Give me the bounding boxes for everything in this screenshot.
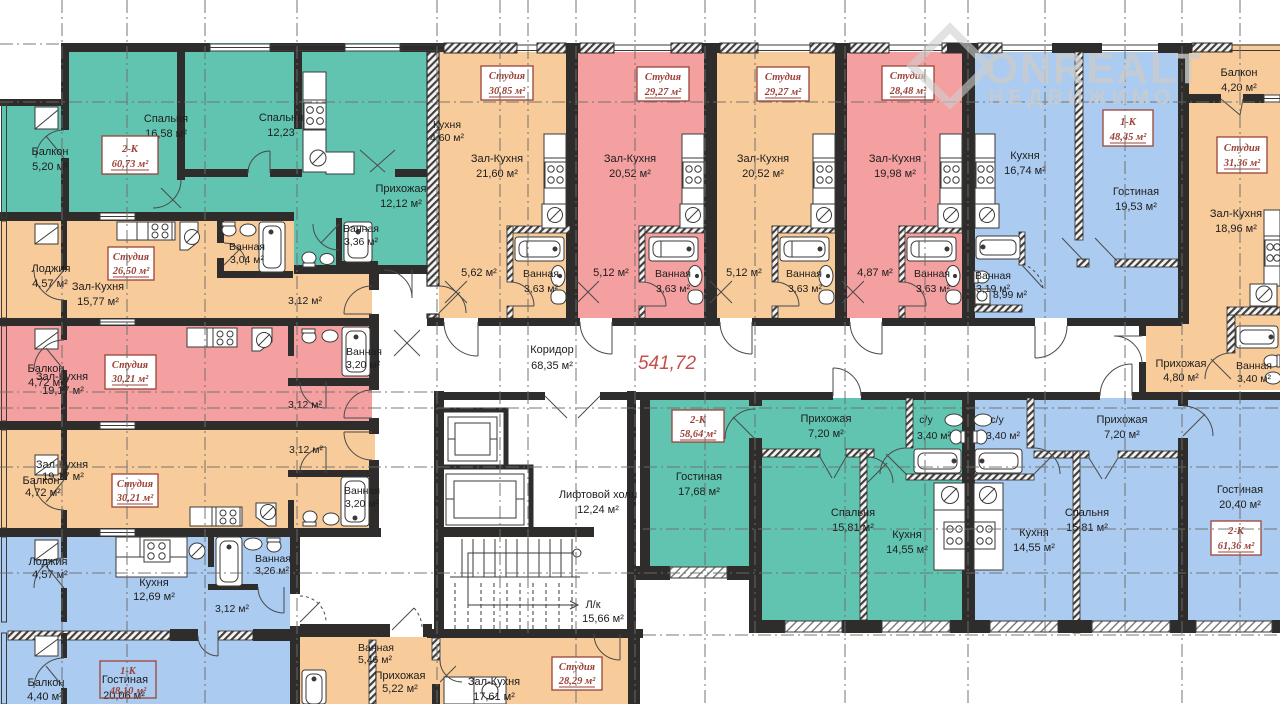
svg-text:Кухня: Кухня [892,529,921,541]
svg-text:Коридор: Коридор [530,344,573,356]
svg-text:5,22 м²: 5,22 м² [382,683,418,695]
svg-text:Спальня: Спальня [144,113,188,125]
svg-text:с/у: с/у [919,414,933,426]
svg-text:Гостиная: Гостиная [1113,186,1159,198]
svg-text:3,12 м²: 3,12 м² [288,399,323,411]
svg-text:15,66 м²: 15,66 м² [582,613,624,625]
svg-text:4,72 м²: 4,72 м² [25,487,61,499]
svg-text:3,40 м²: 3,40 м² [1237,373,1272,385]
svg-text:Ванная: Ванная [975,270,1011,282]
svg-text:Лифтовой холл: Лифтовой холл [559,489,637,501]
svg-text:Ванная: Ванная [344,485,380,497]
svg-text:3,20 м²: 3,20 м² [346,359,381,371]
svg-text:3,12 м²: 3,12 м² [289,444,324,456]
svg-text:15,77 м²: 15,77 м² [77,296,119,308]
svg-text:48,10 м²: 48,10 м² [109,686,147,697]
svg-text:Прихожая: Прихожая [801,413,852,425]
svg-text:Студия: Студия [765,72,802,83]
svg-text:Зал-Кухня: Зал-Кухня [72,281,124,293]
svg-text:19,53 м²: 19,53 м² [1115,201,1157,213]
svg-text:Прихожая: Прихожая [1097,414,1148,426]
svg-text:60,73 м²: 60,73 м² [112,159,149,170]
svg-text:28,48 м²: 28,48 м² [889,86,927,97]
svg-text:30,21 м²: 30,21 м² [116,493,154,504]
svg-text:Студия: Студия [1224,143,1261,154]
svg-text:541,72: 541,72 [638,353,697,374]
svg-text:Ванная: Ванная [229,241,265,253]
svg-text:3,63 м²: 3,63 м² [916,283,951,295]
svg-text:31,36 м²: 31,36 м² [1223,158,1261,169]
svg-text:Прихожая: Прихожая [375,670,426,682]
svg-text:4,57 м²: 4,57 м² [32,278,68,290]
svg-text:12,24 м²: 12,24 м² [577,504,619,516]
svg-text:1-К: 1-К [1120,117,1137,128]
svg-text:12,23: 12,23 [267,127,295,139]
svg-text:Балкон: Балкон [23,475,60,487]
svg-text:Зал-Кухня: Зал-Кухня [604,153,656,165]
svg-text:5,12 м²: 5,12 м² [726,267,762,279]
svg-text:17,61 м²: 17,61 м² [473,691,515,703]
svg-text:Кухня: Кухня [1010,150,1039,162]
svg-text:Студия: Студия [645,72,682,83]
svg-text:2-К: 2-К [1227,526,1245,537]
svg-text:29,27 м²: 29,27 м² [764,87,802,98]
svg-text:3,36 м²: 3,36 м² [344,236,379,248]
svg-text:18,96 м²: 18,96 м² [1215,223,1257,235]
svg-text:19,98 м²: 19,98 м² [874,168,916,180]
svg-text:3,04 м²: 3,04 м² [230,254,265,266]
svg-text:20,52 м²: 20,52 м² [742,168,784,180]
svg-text:Ванная: Ванная [255,553,291,565]
svg-text:Л/к: Л/к [585,599,600,611]
svg-text:12,69 м²: 12,69 м² [133,591,175,603]
svg-text:3,63 м²: 3,63 м² [788,283,823,295]
svg-text:5,12 м²: 5,12 м² [593,267,629,279]
svg-text:Спальня: Спальня [1065,507,1109,519]
svg-text:4,20 м²: 4,20 м² [1221,82,1257,94]
svg-text:3,40 м²: 3,40 м² [917,430,952,442]
svg-text:5,46 м²: 5,46 м² [358,654,393,666]
svg-text:Ванная: Ванная [786,268,822,280]
svg-text:14,55 м²: 14,55 м² [886,544,928,556]
svg-text:3,40 м²: 3,40 м² [986,430,1021,442]
svg-text:3,20 м²: 3,20 м² [345,498,380,510]
svg-text:Ванная: Ванная [343,223,379,235]
svg-text:15,81 м²: 15,81 м² [1066,522,1108,534]
svg-text:Прихожая: Прихожая [376,183,427,195]
svg-text:3,63 м²: 3,63 м² [656,283,691,295]
svg-text:4,80 м²: 4,80 м² [1163,372,1199,384]
svg-text:Студия: Студия [117,479,154,490]
svg-text:68,35 м²: 68,35 м² [531,360,573,372]
svg-text:Зал-Кухня: Зал-Кухня [1210,208,1262,220]
svg-text:21,60 м²: 21,60 м² [476,168,518,180]
svg-text:3,26 м²: 3,26 м² [255,565,290,577]
svg-text:4,57 м²: 4,57 м² [32,569,68,581]
svg-text:14,55 м²: 14,55 м² [1013,542,1055,554]
svg-text:Зал-Кухня: Зал-Кухня [468,676,520,688]
svg-text:Гостиная: Гостиная [676,471,722,483]
svg-text:Студия: Студия [489,71,526,82]
svg-text:Ванная: Ванная [346,346,382,358]
svg-text:19,17 м²: 19,17 м² [42,385,84,397]
svg-text:28,29 м²: 28,29 м² [558,676,596,687]
svg-text:4,60 м²: 4,60 м² [430,132,465,144]
svg-text:2-К: 2-К [689,415,707,426]
svg-text:7,20 м²: 7,20 м² [808,428,844,440]
svg-text:5,62 м²: 5,62 м² [461,267,497,279]
svg-text:Кухня: Кухня [139,577,168,589]
svg-text:Балкон: Балкон [28,677,65,689]
svg-text:30,21 м²: 30,21 м² [111,374,149,385]
svg-text:8,99 м²: 8,99 м² [993,289,1028,301]
svg-text:61,36 м²: 61,36 м² [1218,541,1255,552]
svg-text:Зал-Кухня: Зал-Кухня [869,153,921,165]
svg-text:3,63 м²: 3,63 м² [524,283,559,295]
svg-text:7,20 м²: 7,20 м² [1104,429,1140,441]
svg-text:29,27 м²: 29,27 м² [644,87,682,98]
svg-text:12,12 м²: 12,12 м² [380,198,422,210]
svg-text:48,45 м²: 48,45 м² [1109,132,1147,143]
svg-text:58,64 м²: 58,64 м² [680,429,717,440]
svg-text:26,50 м²: 26,50 м² [112,266,150,277]
svg-text:1-К: 1-К [120,666,137,677]
svg-text:2-К: 2-К [121,144,139,155]
svg-text:Спальня: Спальня [831,507,875,519]
svg-text:Зал-Кухня: Зал-Кухня [471,153,523,165]
svg-text:4,40 м²: 4,40 м² [27,691,63,703]
svg-text:Ванная: Ванная [914,268,950,280]
svg-text:3,12 м²: 3,12 м² [288,295,323,307]
svg-text:с/у: с/у [990,414,1004,426]
svg-text:20,52 м²: 20,52 м² [609,168,651,180]
svg-text:17,68 м²: 17,68 м² [678,486,720,498]
svg-text:Студия: Студия [112,360,149,371]
svg-text:Лоджия: Лоджия [32,263,71,275]
svg-text:3,12 м²: 3,12 м² [215,603,250,615]
svg-text:НЕДВИЖИМО: НЕДВИЖИМО [988,86,1175,109]
svg-text:Прихожая: Прихожая [1156,358,1207,370]
svg-text:Студия: Студия [113,252,150,263]
svg-text:Балкон: Балкон [32,146,69,158]
svg-text:5,20 м²: 5,20 м² [32,161,68,173]
svg-text:Ванная: Ванная [655,268,691,280]
svg-text:Зал-Кухня: Зал-Кухня [737,153,789,165]
svg-text:Студия: Студия [559,662,596,673]
svg-text:16,74 м²: 16,74 м² [1004,165,1046,177]
svg-text:Ванная: Ванная [1236,360,1272,372]
svg-text:15,81 м²: 15,81 м² [832,522,874,534]
svg-text:30,85 м²: 30,85 м² [488,86,526,97]
svg-text:Балкон: Балкон [1221,67,1258,79]
svg-text:4,87 м²: 4,87 м² [857,267,893,279]
svg-text:Ванная: Ванная [358,642,394,654]
